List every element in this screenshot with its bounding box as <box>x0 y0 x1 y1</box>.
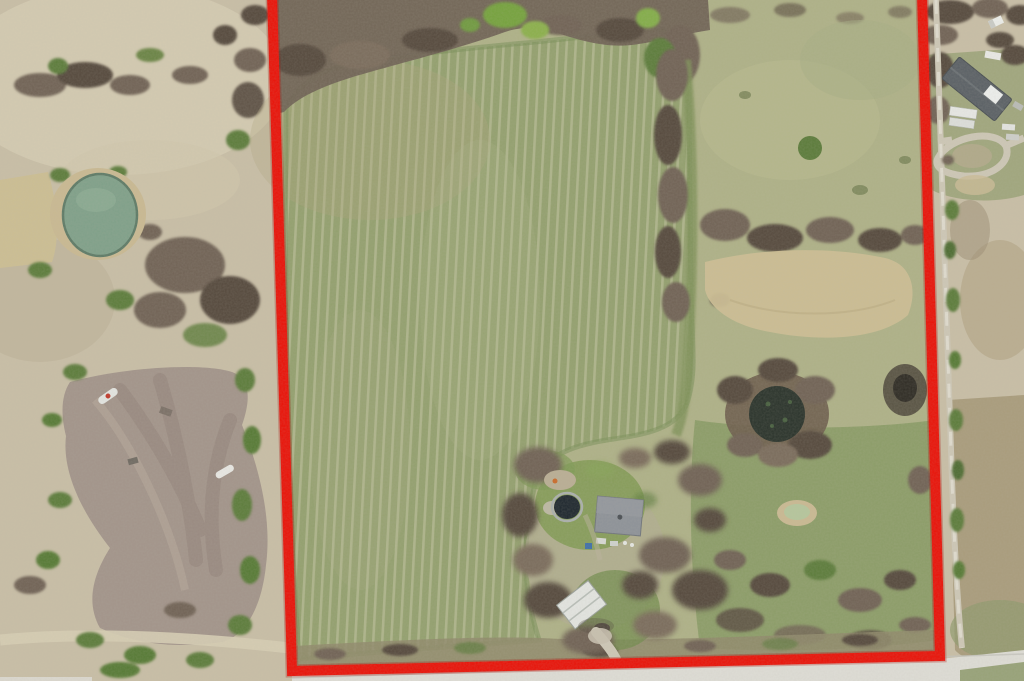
photo-grain-overlay <box>0 0 1024 681</box>
aerial-photo-canvas <box>0 0 1024 681</box>
